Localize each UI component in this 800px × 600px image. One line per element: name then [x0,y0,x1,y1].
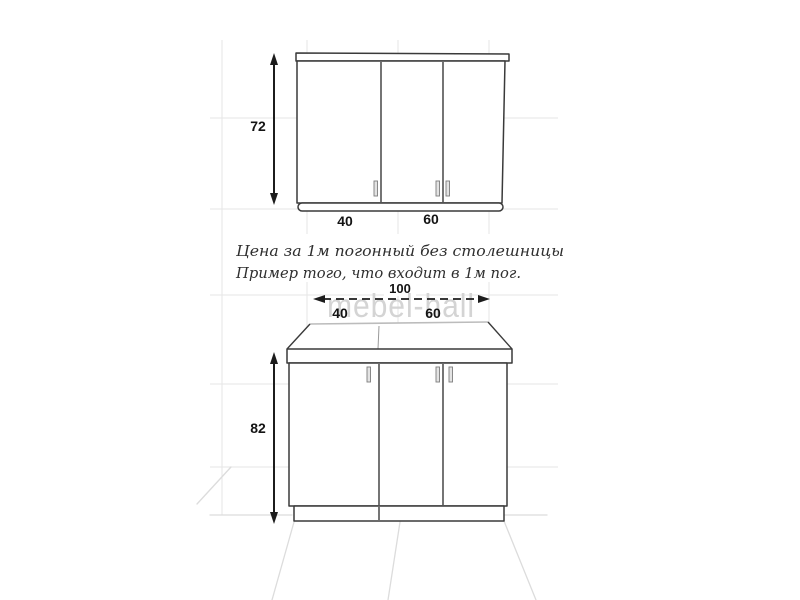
base-height-dimension [270,352,278,524]
base-cabinet-worktop [287,322,512,349]
wall-door-width-label-60: 60 [423,211,439,227]
diagram-canvas: mebel-hall Цена за 1м погонный без столе… [0,0,800,600]
wall-cabinet-left-door-handle [374,181,378,196]
wall-door-width-label-40: 40 [337,213,353,229]
wall-cabinet-drawing [296,53,509,211]
wall-cabinet-bottom-trim [298,203,503,211]
wall-height-dimension [270,53,278,205]
base-cabinet-right-door-handle [449,367,453,382]
base-height-label: 82 [250,420,266,436]
wall-cabinet-middle-door-handle [436,181,440,196]
base-door-width-label-40: 40 [332,305,348,321]
base-door-width-label-60: 60 [425,305,441,321]
wall-height-label: 72 [250,118,266,134]
kitchen-cabinet-dimension-diagram: mebel-hall Цена за 1м погонный без столе… [0,0,800,600]
wall-cabinet-top-panel [296,53,509,61]
base-cabinet-front [289,363,507,506]
base-cabinet-drawing [287,322,512,521]
base-cabinet-left-door-handle [367,367,371,382]
base-cabinet-middle-door-handle [436,367,440,382]
total-width-label: 100 [389,281,411,296]
price-note-line2: Пример того, что входит в 1м пог. [235,264,521,282]
worktop-front-band [287,349,512,363]
wall-cabinet-front [297,61,505,203]
wall-cabinet-right-door-handle [446,181,450,196]
base-cabinet-plinth [294,506,504,521]
price-note-line1: Цена за 1м погонный без столешницы [236,242,564,260]
